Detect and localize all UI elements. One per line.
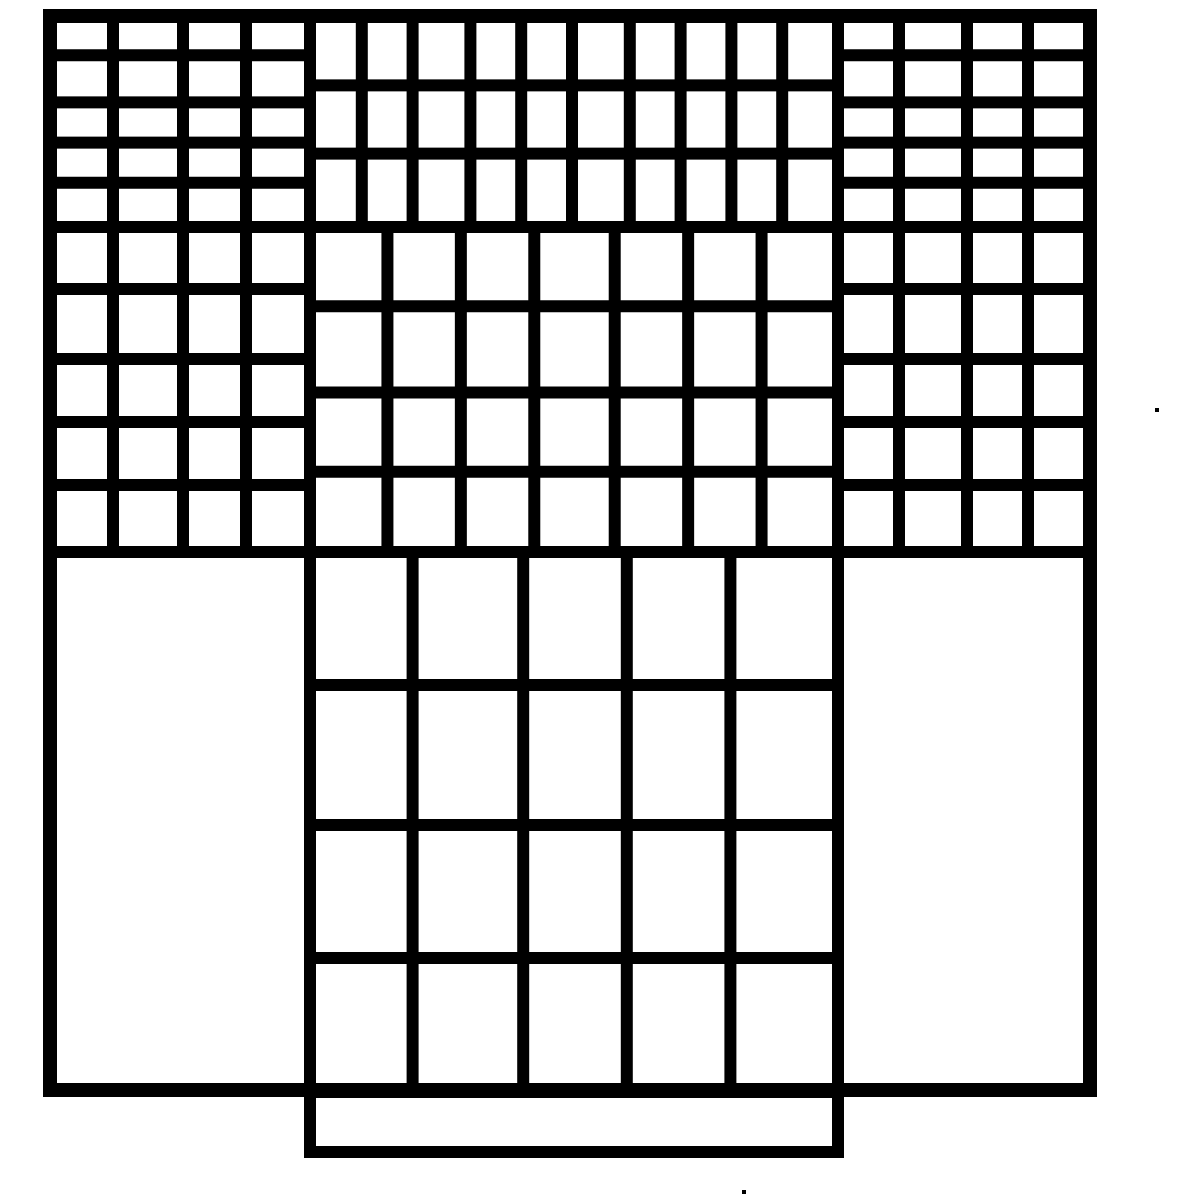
- bottom-protruding-tab: [310, 1092, 838, 1152]
- middle-center-grid: [310, 227, 838, 552]
- scanned-figure-page: [0, 0, 1200, 1200]
- scan-speck: [1155, 408, 1159, 412]
- top-center-grid: [310, 16, 838, 227]
- bottom-left-blank-panel: [50, 552, 310, 1090]
- top-right-fine-grid: [838, 16, 1090, 227]
- bottom-right-blank-panel: [838, 552, 1090, 1090]
- top-left-fine-grid: [50, 16, 310, 227]
- scan-speck: [742, 1190, 746, 1194]
- grid-figure: [0, 0, 1200, 1200]
- middle-right-grid: [838, 227, 1090, 552]
- bottom-center-coarse-grid: [310, 552, 838, 1092]
- middle-left-grid: [50, 227, 310, 552]
